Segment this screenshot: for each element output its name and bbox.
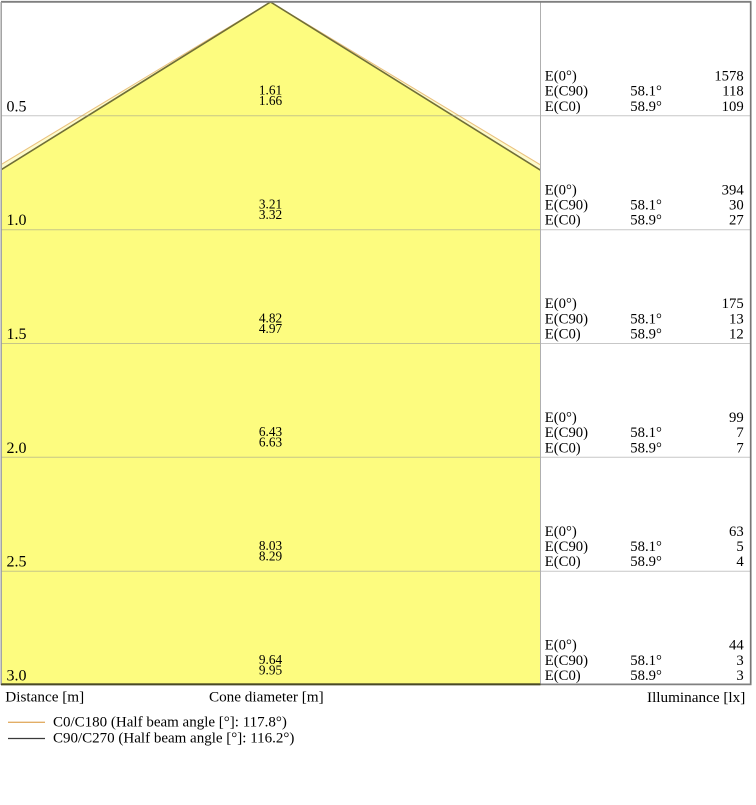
svg-text:C0/C180 (Half beam angle [°]:: C0/C180 (Half beam angle [°]: 117.8°) bbox=[53, 715, 287, 731]
svg-text:58.1°: 58.1° bbox=[630, 311, 662, 327]
svg-text:58.9°: 58.9° bbox=[630, 99, 662, 115]
svg-text:58.1°: 58.1° bbox=[630, 84, 662, 100]
svg-text:1.0: 1.0 bbox=[7, 212, 27, 229]
svg-text:58.1°: 58.1° bbox=[630, 425, 662, 441]
svg-text:3: 3 bbox=[736, 653, 743, 669]
svg-text:7: 7 bbox=[736, 440, 743, 456]
svg-text:58.1°: 58.1° bbox=[630, 653, 662, 669]
svg-text:99: 99 bbox=[729, 410, 744, 426]
svg-text:0.5: 0.5 bbox=[7, 98, 27, 115]
svg-text:63: 63 bbox=[729, 524, 744, 540]
svg-text:4: 4 bbox=[736, 554, 744, 570]
svg-text:30: 30 bbox=[729, 198, 744, 214]
svg-text:58.9°: 58.9° bbox=[630, 327, 662, 343]
svg-text:118: 118 bbox=[722, 84, 744, 100]
svg-text:58.9°: 58.9° bbox=[630, 554, 662, 570]
svg-text:1578: 1578 bbox=[714, 68, 743, 84]
svg-text:E(C0): E(C0) bbox=[545, 99, 581, 115]
svg-text:E(C0): E(C0) bbox=[545, 554, 581, 570]
svg-text:E(C0): E(C0) bbox=[545, 327, 581, 343]
svg-text:3: 3 bbox=[736, 668, 743, 684]
svg-text:E(C90): E(C90) bbox=[545, 425, 588, 441]
svg-text:E(C90): E(C90) bbox=[545, 539, 588, 555]
svg-text:7: 7 bbox=[736, 425, 743, 441]
svg-text:109: 109 bbox=[722, 99, 744, 115]
svg-text:E(C0): E(C0) bbox=[545, 213, 581, 229]
svg-text:9.95: 9.95 bbox=[259, 662, 283, 677]
svg-text:Cone diameter [m]: Cone diameter [m] bbox=[209, 689, 324, 706]
svg-text:E(0°): E(0°) bbox=[545, 524, 577, 540]
svg-text:E(C90): E(C90) bbox=[545, 198, 588, 214]
svg-text:E(C90): E(C90) bbox=[545, 311, 588, 327]
svg-text:27: 27 bbox=[729, 213, 744, 229]
svg-text:2.5: 2.5 bbox=[7, 554, 27, 571]
svg-text:E(C0): E(C0) bbox=[545, 440, 581, 456]
svg-text:E(0°): E(0°) bbox=[545, 638, 577, 654]
svg-text:58.1°: 58.1° bbox=[630, 198, 662, 214]
svg-text:2.0: 2.0 bbox=[7, 440, 27, 457]
svg-text:12: 12 bbox=[729, 327, 744, 343]
svg-text:E(0°): E(0°) bbox=[545, 296, 577, 312]
svg-text:58.9°: 58.9° bbox=[630, 213, 662, 229]
svg-text:E(0°): E(0°) bbox=[545, 68, 577, 84]
svg-text:394: 394 bbox=[722, 182, 745, 198]
svg-text:E(0°): E(0°) bbox=[545, 182, 577, 198]
svg-text:E(C90): E(C90) bbox=[545, 653, 588, 669]
svg-text:6.63: 6.63 bbox=[259, 435, 283, 450]
svg-text:3.0: 3.0 bbox=[7, 668, 27, 685]
svg-text:4.97: 4.97 bbox=[259, 321, 283, 336]
svg-text:58.1°: 58.1° bbox=[630, 539, 662, 555]
svg-text:175: 175 bbox=[722, 296, 744, 312]
svg-text:Distance [m]: Distance [m] bbox=[5, 689, 84, 706]
svg-text:E(C0): E(C0) bbox=[545, 668, 581, 684]
svg-text:58.9°: 58.9° bbox=[630, 440, 662, 456]
svg-text:3.32: 3.32 bbox=[259, 207, 282, 222]
svg-text:44: 44 bbox=[729, 638, 744, 654]
svg-text:58.9°: 58.9° bbox=[630, 668, 662, 684]
svg-text:5: 5 bbox=[736, 539, 743, 555]
svg-text:E(C90): E(C90) bbox=[545, 84, 588, 100]
svg-text:Illuminance [lx]: Illuminance [lx] bbox=[647, 689, 745, 706]
svg-text:C90/C270 (Half beam angle [°]:: C90/C270 (Half beam angle [°]: 116.2°) bbox=[53, 731, 294, 747]
svg-text:E(0°): E(0°) bbox=[545, 410, 577, 426]
svg-text:1.66: 1.66 bbox=[259, 93, 283, 108]
svg-text:13: 13 bbox=[729, 311, 744, 327]
svg-text:8.29: 8.29 bbox=[259, 549, 283, 564]
svg-text:1.5: 1.5 bbox=[7, 326, 27, 343]
